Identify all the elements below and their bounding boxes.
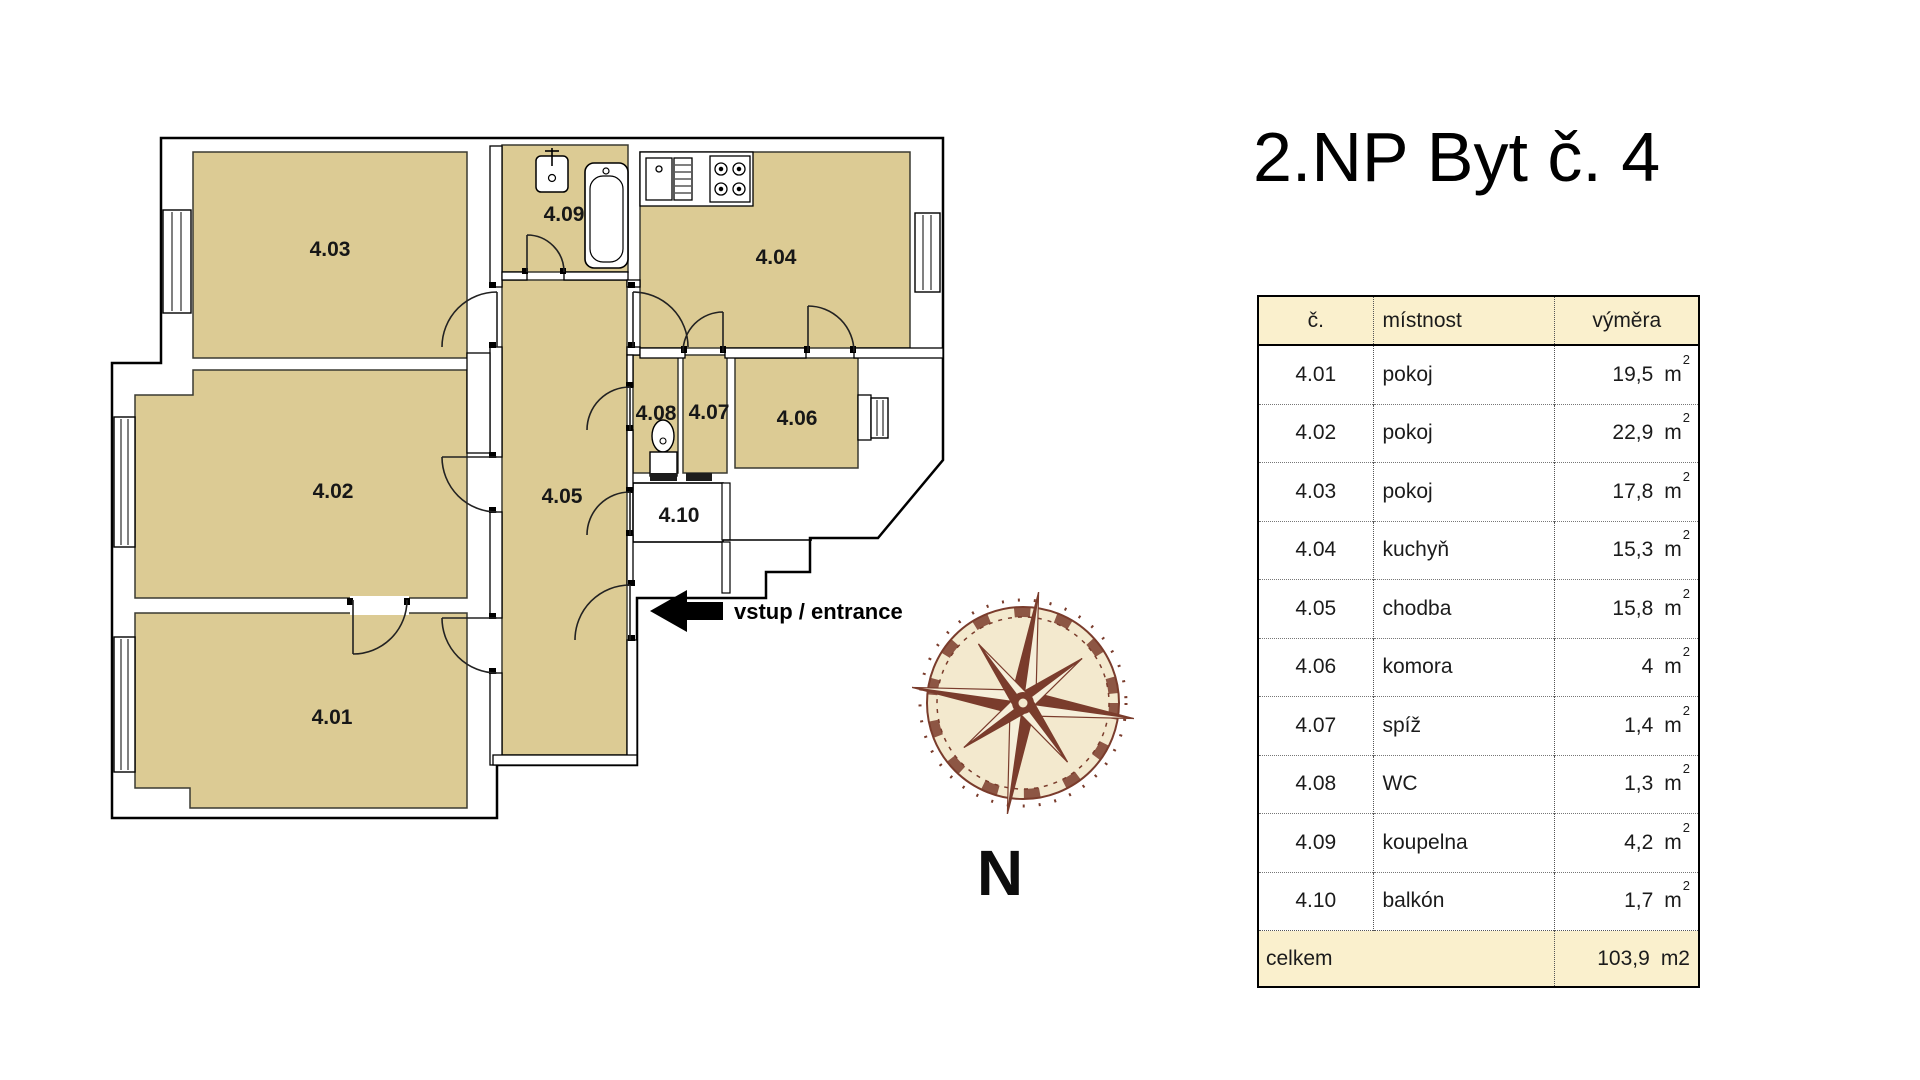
room-area-cell: 4,2m2 [1554,814,1699,873]
room-name-cell: komora [1373,638,1554,697]
room-number-cell: 4.04 [1258,521,1373,580]
table-row: 4.10balkón1,7m2 [1258,872,1699,931]
room-402-area [135,370,467,598]
room-label-407: 4.07 [689,401,730,424]
room-area-cell: 1,3m2 [1554,755,1699,814]
table-row: 4.05chodba15,8m2 [1258,580,1699,639]
room-table-body: 4.01pokoj19,5m24.02pokoj22,9m24.03pokoj1… [1258,345,1699,931]
landing-railing [722,542,730,593]
room-label-408: 4.08 [636,402,677,425]
room-number-cell: 4.02 [1258,404,1373,463]
room-name-cell: pokoj [1373,345,1554,404]
stove-icon [710,156,750,202]
room-label-410: 4.10 [659,504,700,527]
room-name-cell: balkón [1373,872,1554,931]
room-area-cell: 1,4m2 [1554,697,1699,756]
room-label-402: 4.02 [313,480,354,503]
room-label-405: 4.05 [542,485,583,508]
table-header-row: č. místnost výměra [1258,296,1699,345]
room-name-cell: pokoj [1373,463,1554,522]
column-header-room: místnost [1373,296,1554,345]
room-area-cell: 4m2 [1554,638,1699,697]
room-label-409: 4.09 [544,203,585,226]
table-row: 4.04kuchyň15,3m2 [1258,521,1699,580]
page-title: 2.NP Byt č. 4 [1253,122,1660,192]
room-name-cell: chodba [1373,580,1554,639]
balcony-railing [722,483,730,540]
room-name-cell: kuchyň [1373,521,1554,580]
table-row: 4.09koupelna4,2m2 [1258,814,1699,873]
room-name-cell: WC [1373,755,1554,814]
room-label-403: 4.03 [310,238,351,261]
radiator-sill [686,473,712,481]
bathtub-icon [585,163,628,268]
room-405-area [502,280,627,755]
room-label-406: 4.06 [777,407,818,430]
room-name-cell: spíž [1373,697,1554,756]
table-row: 4.01pokoj19,5m2 [1258,345,1699,404]
room-number-cell: 4.08 [1258,755,1373,814]
room-number-cell: 4.07 [1258,697,1373,756]
radiator-sill [650,473,677,481]
table-row: 4.02pokoj22,9m2 [1258,404,1699,463]
room-label-401: 4.01 [312,706,353,729]
room-number-cell: 4.05 [1258,580,1373,639]
column-header-area: výměra [1554,296,1699,345]
room-area-cell: 15,3m2 [1554,521,1699,580]
total-value: 103,9m2 [1554,931,1699,988]
table-row: 4.03pokoj17,8m2 [1258,463,1699,522]
table-row: 4.07spíž1,4m2 [1258,697,1699,756]
room-area-cell: 1,7m2 [1554,872,1699,931]
room-name-cell: koupelna [1373,814,1554,873]
table-row: 4.08WC1,3m2 [1258,755,1699,814]
room-number-cell: 4.06 [1258,638,1373,697]
floor-plan-page: 4.03 4.09 4.04 4.02 4.05 4.08 4.07 4.06 … [0,0,1920,1080]
column-header-number: č. [1258,296,1373,345]
north-label: N [977,837,1023,909]
room-number-cell: 4.01 [1258,345,1373,404]
room-number-cell: 4.09 [1258,814,1373,873]
room-number-cell: 4.10 [1258,872,1373,931]
table-row: 4.06komora4m2 [1258,638,1699,697]
room-area-cell: 22,9m2 [1554,404,1699,463]
room-name-cell: pokoj [1373,404,1554,463]
room-401-area [135,613,467,808]
room-area-cell: 19,5m2 [1554,345,1699,404]
entrance-label: vstup / entrance [734,599,903,624]
table-total-row: celkem 103,9m2 [1258,931,1699,988]
room-label-404: 4.04 [756,246,797,269]
room-table: č. místnost výměra 4.01pokoj19,5m24.02po… [1257,295,1698,988]
room-area-cell: 17,8m2 [1554,463,1699,522]
total-label: celkem [1258,931,1554,988]
compass-rose-icon [897,577,1150,830]
room-area-cell: 15,8m2 [1554,580,1699,639]
room-number-cell: 4.03 [1258,463,1373,522]
shaft-block [467,353,490,453]
